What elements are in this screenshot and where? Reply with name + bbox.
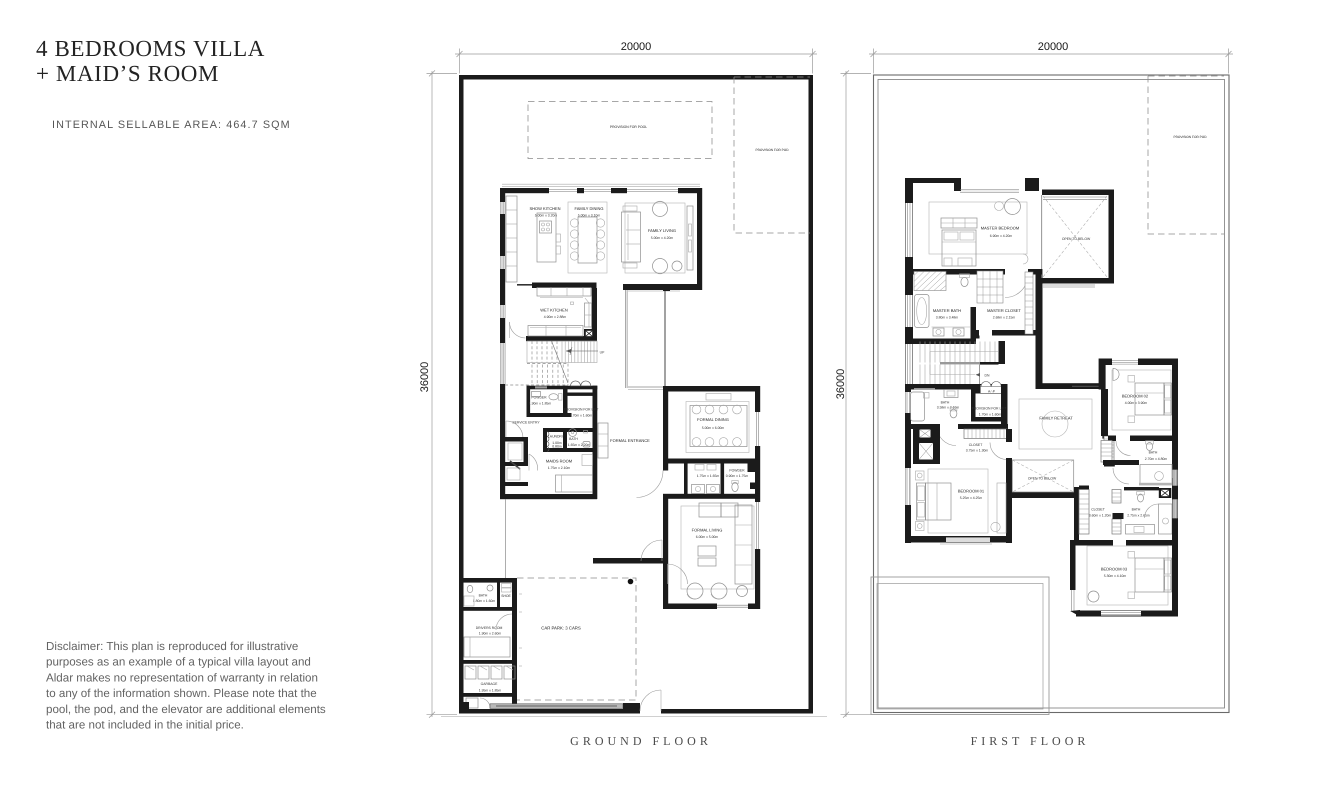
- svg-text:UP: UP: [600, 351, 605, 355]
- svg-text:BATH: BATH: [941, 400, 950, 404]
- svg-text:5.00m x 4.20m: 5.00m x 4.20m: [651, 236, 674, 240]
- svg-text:INTERNAL SELLABLE AREA: 464.7: INTERNAL SELLABLE AREA: 464.7 SQM: [52, 119, 291, 131]
- svg-text:OPEN TO BELOW: OPEN TO BELOW: [1028, 476, 1057, 480]
- svg-text:2.70m x 4.80m: 2.70m x 4.80m: [1145, 457, 1168, 461]
- svg-text:SHOE: SHOE: [501, 594, 511, 598]
- svg-text:FORMAL LIVING: FORMAL LIVING: [692, 527, 723, 532]
- svg-text:6.90m x 4.20m: 6.90m x 4.20m: [990, 234, 1013, 238]
- svg-text:DRIVERS ROOM: DRIVERS ROOM: [476, 626, 503, 630]
- svg-text:2.75m x 2.65m: 2.75m x 2.65m: [1127, 513, 1150, 517]
- svg-text:3.75m x 1.30m: 3.75m x 1.30m: [966, 449, 989, 453]
- svg-text:pool, the pod, and the elevato: pool, the pod, and the elevator are addi…: [46, 703, 326, 716]
- svg-text:1.90m x 2.60m: 1.90m x 2.60m: [479, 632, 502, 636]
- svg-text:purposes as an example of a ty: purposes as an example of a typical vill…: [46, 656, 311, 669]
- svg-text:6.00m x 5.00m: 6.00m x 5.00m: [696, 535, 719, 539]
- svg-text:BEDROOM 01: BEDROOM 01: [958, 488, 985, 493]
- svg-text:1.95m x 1.85m: 1.95m x 1.85m: [479, 688, 502, 692]
- svg-text:5.30m x 4.10m: 5.30m x 4.10m: [1104, 574, 1127, 578]
- svg-text:BATH: BATH: [1149, 451, 1158, 455]
- svg-text:5.00m x 3.20m: 5.00m x 3.20m: [535, 213, 558, 217]
- svg-text:1.90m x 1.85m: 1.90m x 1.85m: [529, 402, 552, 406]
- svg-text:4.90m x 2.88m: 4.90m x 2.88m: [544, 315, 567, 319]
- svg-text:3.80m x 3.48m: 3.80m x 3.48m: [936, 316, 959, 320]
- svg-text:FORMAL DINING: FORMAL DINING: [697, 417, 729, 422]
- svg-text:MAIDS ROOM: MAIDS ROOM: [546, 459, 572, 464]
- svg-text:MASTER BATH: MASTER BATH: [933, 308, 961, 313]
- svg-text:DN: DN: [985, 374, 990, 378]
- svg-text:PROVISION FOR LIFT: PROVISION FOR LIFT: [564, 408, 599, 412]
- svg-text:A∩P: A∩P: [988, 389, 996, 393]
- svg-text:FIRST FLOOR: FIRST FLOOR: [971, 734, 1090, 748]
- svg-text:BATH: BATH: [569, 437, 578, 441]
- svg-text:POWDER: POWDER: [531, 395, 547, 399]
- svg-text:0.90m x 1.75m: 0.90m x 1.75m: [726, 474, 749, 478]
- svg-text:5.25m x 4.25m: 5.25m x 4.25m: [960, 496, 983, 500]
- svg-text:36000: 36000: [419, 362, 431, 393]
- svg-text:OPEN TO BELOW: OPEN TO BELOW: [1062, 237, 1091, 241]
- svg-text:4 BEDROOMS VILLA: 4 BEDROOMS VILLA: [36, 36, 265, 61]
- svg-text:CLOSET: CLOSET: [969, 443, 983, 447]
- svg-text:36000: 36000: [835, 369, 847, 400]
- svg-text:3.60m x 1.20m: 3.60m x 1.20m: [1089, 513, 1112, 517]
- svg-text:1.65m x 2.20m: 1.65m x 2.20m: [568, 443, 591, 447]
- svg-text:POWDER: POWDER: [729, 468, 745, 472]
- svg-text:+ MAID’S ROOM: + MAID’S ROOM: [36, 61, 219, 86]
- svg-text:WET KITCHEN: WET KITCHEN: [540, 308, 568, 313]
- svg-text:20000: 20000: [1038, 41, 1069, 53]
- svg-text:that are not included in the i: that are not included in the initial pri…: [46, 719, 244, 732]
- svg-text:5.00m x 6.00m: 5.00m x 6.00m: [702, 426, 725, 430]
- svg-text:CAR PARK: 3 CARS: CAR PARK: 3 CARS: [541, 626, 581, 631]
- svg-text:SHOW KITCHEN: SHOW KITCHEN: [529, 206, 560, 211]
- svg-text:Aldar makes no representation: Aldar makes no representation of warrant…: [46, 671, 318, 684]
- svg-text:FORMAL ENTRANCE: FORMAL ENTRANCE: [610, 438, 650, 443]
- svg-text:GROUND FLOOR: GROUND FLOOR: [570, 734, 712, 748]
- svg-text:Disclaimer: This plan is repro: Disclaimer: This plan is reproduced for …: [46, 640, 298, 653]
- svg-text:PROVISION FOR LIFT: PROVISION FOR LIFT: [972, 407, 1007, 411]
- svg-text:PROVISION FOR POOL: PROVISION FOR POOL: [610, 125, 647, 129]
- svg-text:0.80m: 0.80m: [552, 445, 562, 449]
- svg-text:BEDROOM 02: BEDROOM 02: [1122, 393, 1149, 398]
- svg-text:to any of the information show: to any of the information shown. Please …: [46, 687, 317, 700]
- svg-text:4.00m x 3.90m: 4.00m x 3.90m: [1125, 401, 1148, 405]
- svg-text:FAMILY LIVING: FAMILY LIVING: [648, 228, 676, 233]
- svg-text:1.70m x 1.60m: 1.70m x 1.60m: [979, 412, 1002, 416]
- svg-text:20000: 20000: [621, 41, 652, 53]
- svg-text:BATH: BATH: [1132, 507, 1141, 511]
- svg-text:2.68m x 2.15m: 2.68m x 2.15m: [993, 316, 1016, 320]
- svg-text:SERVICE ENTRY: SERVICE ENTRY: [512, 420, 540, 424]
- svg-text:MASTER CLOSET: MASTER CLOSET: [987, 308, 1021, 313]
- svg-text:BATH: BATH: [479, 594, 488, 598]
- svg-text:1.70m x 1.60m: 1.70m x 1.60m: [570, 413, 593, 417]
- svg-text:FAMILY DINING: FAMILY DINING: [575, 206, 604, 211]
- svg-text:1.75m x 2.10m: 1.75m x 2.10m: [548, 466, 571, 470]
- svg-text:LAUNDRY: LAUNDRY: [548, 434, 565, 438]
- svg-text:PROVISION FOR POD: PROVISION FOR POD: [755, 148, 789, 152]
- svg-text:1.80m x 1.60m: 1.80m x 1.60m: [473, 599, 496, 603]
- svg-text:PROVISION FOR POD: PROVISION FOR POD: [1173, 135, 1207, 139]
- svg-text:GARBAGE: GARBAGE: [481, 682, 499, 686]
- svg-text:BEDROOM 03: BEDROOM 03: [1101, 566, 1128, 571]
- svg-text:CLOSET: CLOSET: [1091, 507, 1105, 511]
- svg-text:MASTER BEDROOM: MASTER BEDROOM: [981, 226, 1019, 231]
- svg-text:1.75m x 1.65m: 1.75m x 1.65m: [697, 474, 720, 478]
